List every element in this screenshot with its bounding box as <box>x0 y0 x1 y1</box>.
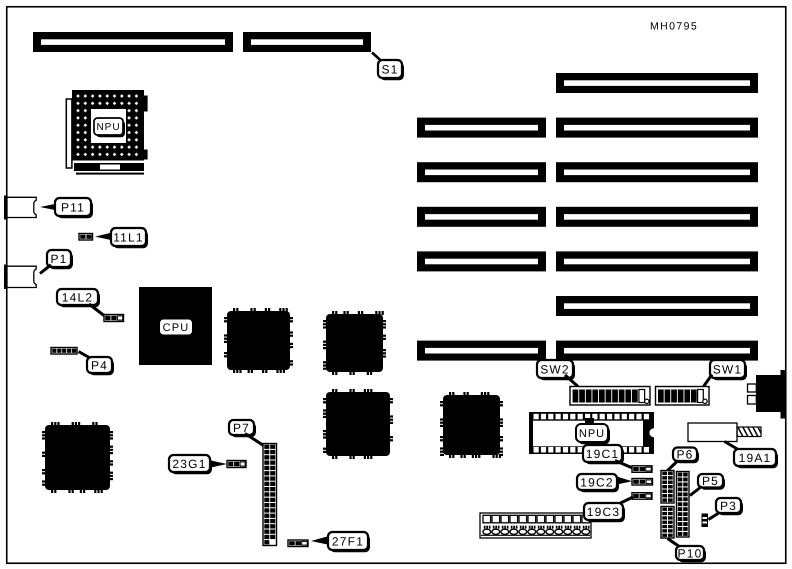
svg-text:P4: P4 <box>91 358 108 372</box>
svg-text:P7: P7 <box>233 421 250 435</box>
svg-text:P5: P5 <box>702 474 719 488</box>
svg-text:23G1: 23G1 <box>172 457 206 471</box>
svg-text:S1: S1 <box>381 62 398 76</box>
svg-text:19C2: 19C2 <box>580 475 614 489</box>
svg-text:19A1: 19A1 <box>739 451 772 465</box>
svg-text:SW1: SW1 <box>713 362 743 376</box>
svg-text:27F1: 27F1 <box>332 534 364 548</box>
svg-text:14L2: 14L2 <box>62 290 94 304</box>
svg-text:P10: P10 <box>678 546 703 560</box>
svg-text:NPU: NPU <box>96 122 120 133</box>
svg-text:NPU: NPU <box>579 428 605 440</box>
svg-text:19C1: 19C1 <box>586 447 620 461</box>
svg-text:MH0795: MH0795 <box>650 21 698 33</box>
svg-text:11L1: 11L1 <box>113 230 144 244</box>
svg-text:P11: P11 <box>61 200 85 214</box>
svg-text:CPU: CPU <box>163 322 190 334</box>
svg-text:P1: P1 <box>50 252 67 266</box>
svg-text:P3: P3 <box>720 499 737 513</box>
svg-text:19C3: 19C3 <box>587 505 621 519</box>
svg-text:P6: P6 <box>676 448 693 462</box>
svg-text:SW2: SW2 <box>540 362 570 376</box>
